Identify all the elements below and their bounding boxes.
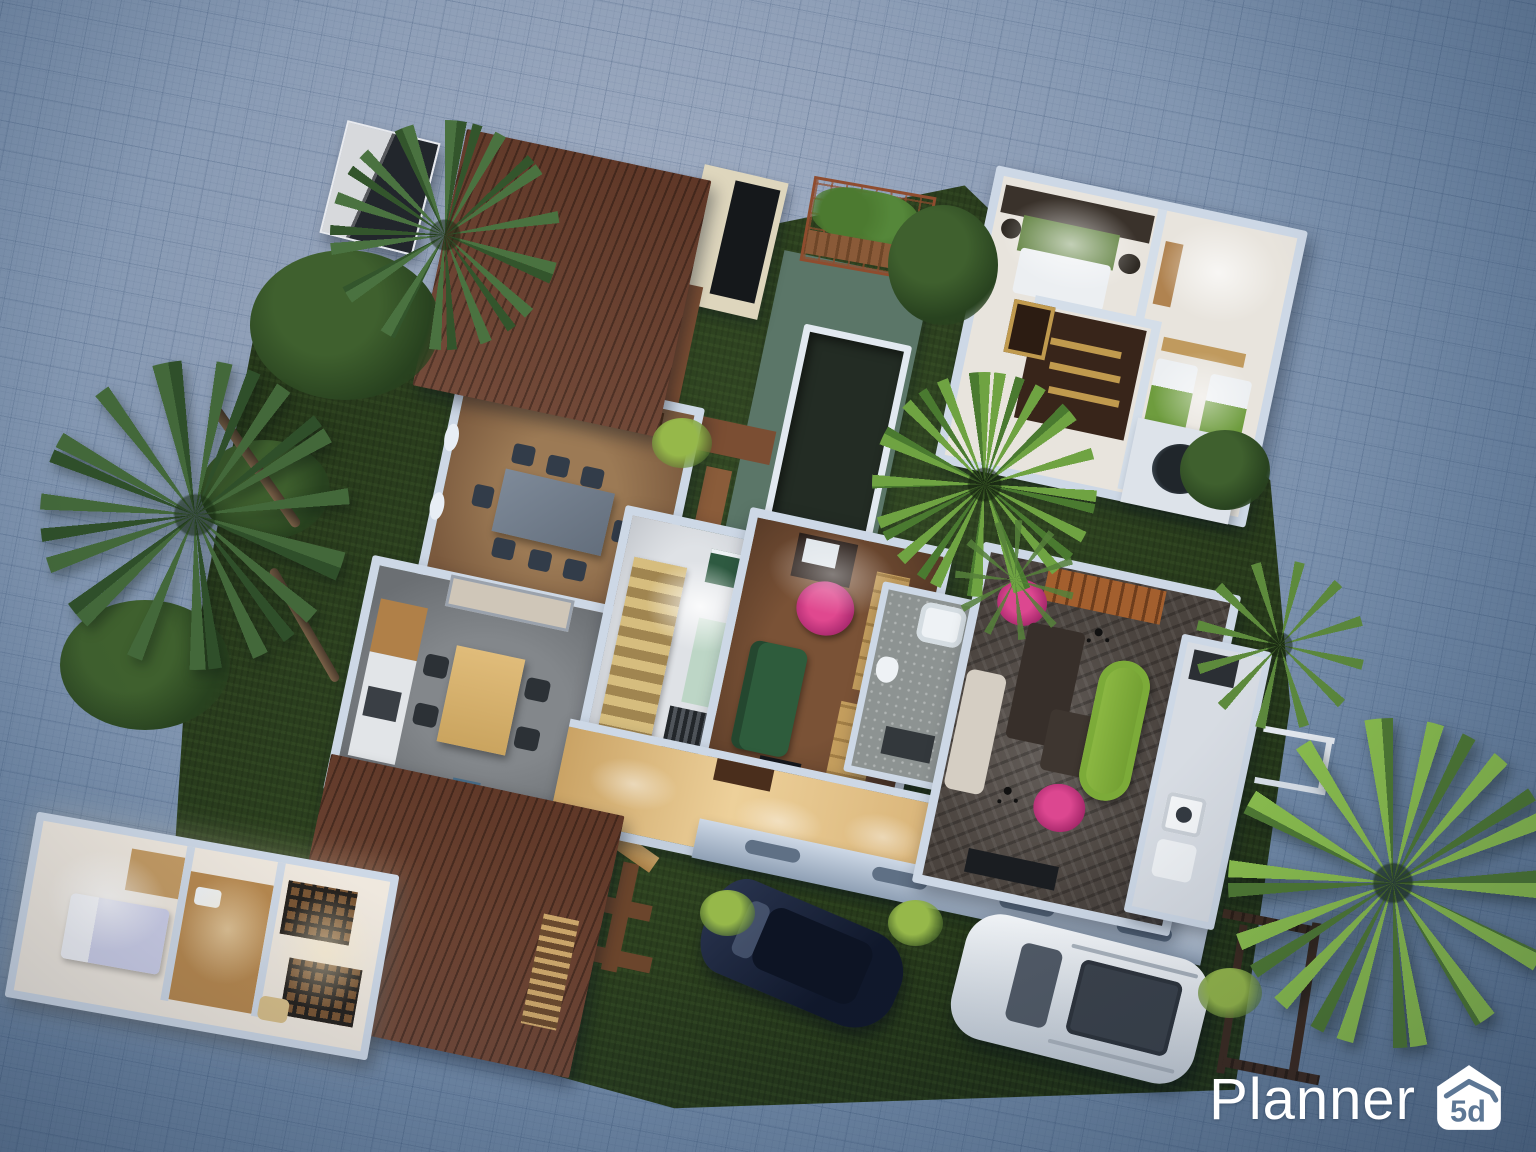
kitchen-chair xyxy=(422,653,450,680)
3d-viewport[interactable]: Planner 5d xyxy=(0,0,1536,1152)
bright-palm xyxy=(1228,718,1536,1048)
leaning-palm-crown xyxy=(330,120,560,350)
kitchen-chair xyxy=(412,702,440,729)
pouf xyxy=(256,995,290,1024)
logo-brand-text: Planner xyxy=(1209,1066,1416,1133)
shrub xyxy=(652,418,712,468)
dining-chair xyxy=(545,454,571,478)
shrub xyxy=(888,900,943,946)
bath-bench xyxy=(880,726,935,764)
dining-chair xyxy=(527,549,553,573)
kitchen-chair xyxy=(523,677,551,704)
lavender-bed xyxy=(60,893,170,975)
svg-text:5d: 5d xyxy=(1450,1094,1486,1129)
fern xyxy=(955,520,1075,640)
bush xyxy=(888,205,998,325)
window xyxy=(744,839,802,864)
dining-chair xyxy=(491,537,517,561)
wardrobe-wood xyxy=(125,849,185,900)
dining-chair xyxy=(579,466,605,490)
closet-slat xyxy=(1050,337,1122,359)
dining-chair xyxy=(511,443,537,467)
dryer xyxy=(1151,838,1198,883)
rack-grid xyxy=(280,880,358,945)
planner5d-logo: Planner 5d xyxy=(1209,1062,1506,1136)
leaning-palm-crown xyxy=(40,360,350,670)
doorway xyxy=(713,758,774,792)
kitchen-chair xyxy=(513,726,541,753)
nightstand xyxy=(1117,252,1143,276)
suv-sunroof xyxy=(1064,958,1183,1057)
kitchen-island xyxy=(437,645,526,755)
bush xyxy=(1180,430,1270,510)
dining-chair xyxy=(471,484,495,510)
shrub xyxy=(700,890,755,936)
closet-slat xyxy=(1049,362,1121,384)
logo-house-badge: 5d xyxy=(1432,1062,1506,1136)
dining-chair xyxy=(562,558,588,582)
fern xyxy=(1195,560,1365,730)
suv-windshield xyxy=(1004,942,1064,1030)
beige-sofa xyxy=(943,668,1007,796)
bathtub xyxy=(915,601,968,650)
shrub xyxy=(1198,968,1262,1018)
toilet xyxy=(874,655,901,685)
tv-unit xyxy=(964,848,1059,891)
kitchen-cabinet-wood xyxy=(370,598,428,661)
rack-grid xyxy=(280,958,363,1028)
green-sofa xyxy=(729,639,809,759)
floor-lamp xyxy=(1003,786,1012,795)
floor-lamp xyxy=(1094,628,1103,637)
papasan-chair xyxy=(1029,779,1090,837)
